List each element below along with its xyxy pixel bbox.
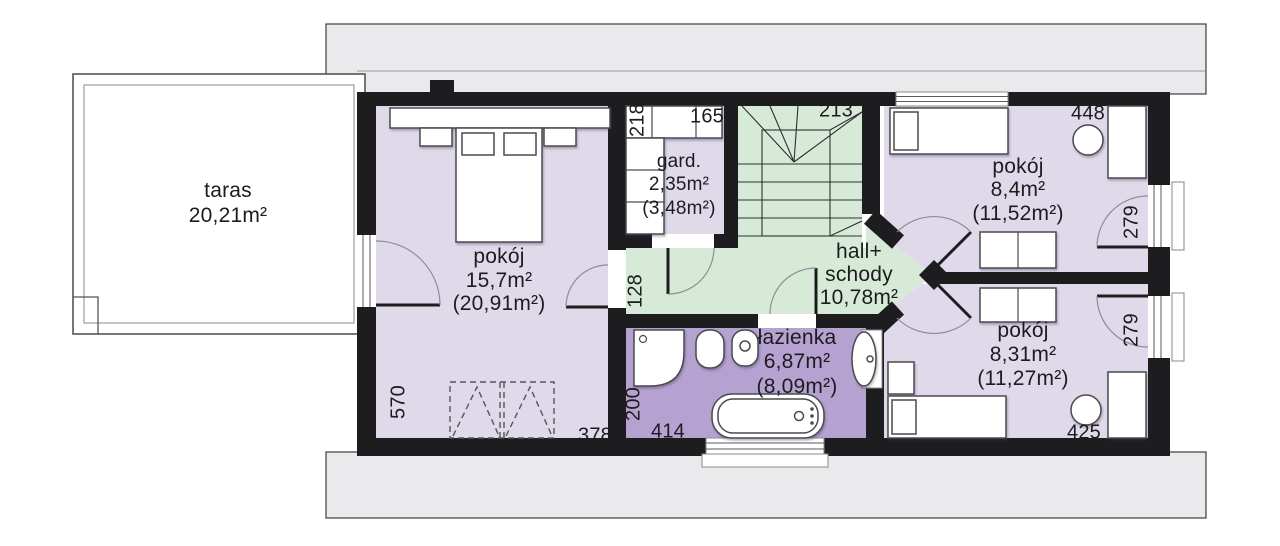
label-wardrobe-name: gard. (657, 151, 701, 173)
floor-plan: taras 20,21m² pokój 15,7m² (20,91m²) gar… (0, 0, 1280, 546)
dim-balcony-top: 279 (1121, 205, 1144, 239)
label-hall-area: 10,78m² (820, 286, 898, 310)
label-hall-name-2: schody (825, 263, 893, 287)
label-room-bottom-name: pokój (997, 319, 1048, 343)
label-wardrobe-area: 2,35m² (649, 174, 709, 196)
dim-bathroom-depth: 200 (623, 387, 646, 421)
dim-room-top-width: 448 (1071, 103, 1105, 126)
label-bathroom-area: 6,87m² (764, 350, 831, 374)
dim-balcony-bottom: 279 (1121, 313, 1144, 347)
label-bathroom-area-gross: (8,09m²) (757, 375, 838, 399)
label-room-top-name: pokój (992, 155, 1043, 179)
dim-stairs-width: 213 (819, 100, 853, 123)
label-hall-name-1: hall+ (836, 240, 882, 264)
label-bathroom-name: łazienka (758, 326, 837, 350)
dim-room-bottom-width: 425 (1067, 422, 1101, 445)
dim-bedroom-depth: 570 (388, 385, 411, 419)
label-room-top-area-gross: (11,52m²) (972, 202, 1063, 226)
dim-hall-width: 128 (625, 274, 648, 308)
label-wardrobe-area-gross: (3,48m²) (642, 198, 715, 220)
label-bedroom-area: 15,7m² (466, 269, 533, 293)
label-room-bottom-area-gross: (11,27m²) (977, 367, 1068, 391)
label-bedroom-area-gross: (20,91m²) (453, 292, 546, 316)
label-terrace-area: 20,21m² (189, 204, 267, 228)
dim-wardrobe-depth: 218 (627, 103, 650, 137)
label-bedroom-name: pokój (473, 245, 524, 269)
label-terrace-name: taras (204, 179, 252, 203)
dim-wardrobe-width: 165 (690, 106, 724, 129)
label-room-top-area: 8,4m² (991, 178, 1046, 202)
dim-bedroom-width: 378 (578, 425, 612, 448)
dim-bathroom-width: 414 (651, 421, 685, 444)
label-room-bottom-area: 8,31m² (990, 343, 1057, 367)
labels: taras 20,21m² pokój 15,7m² (20,91m²) gar… (0, 0, 1280, 546)
